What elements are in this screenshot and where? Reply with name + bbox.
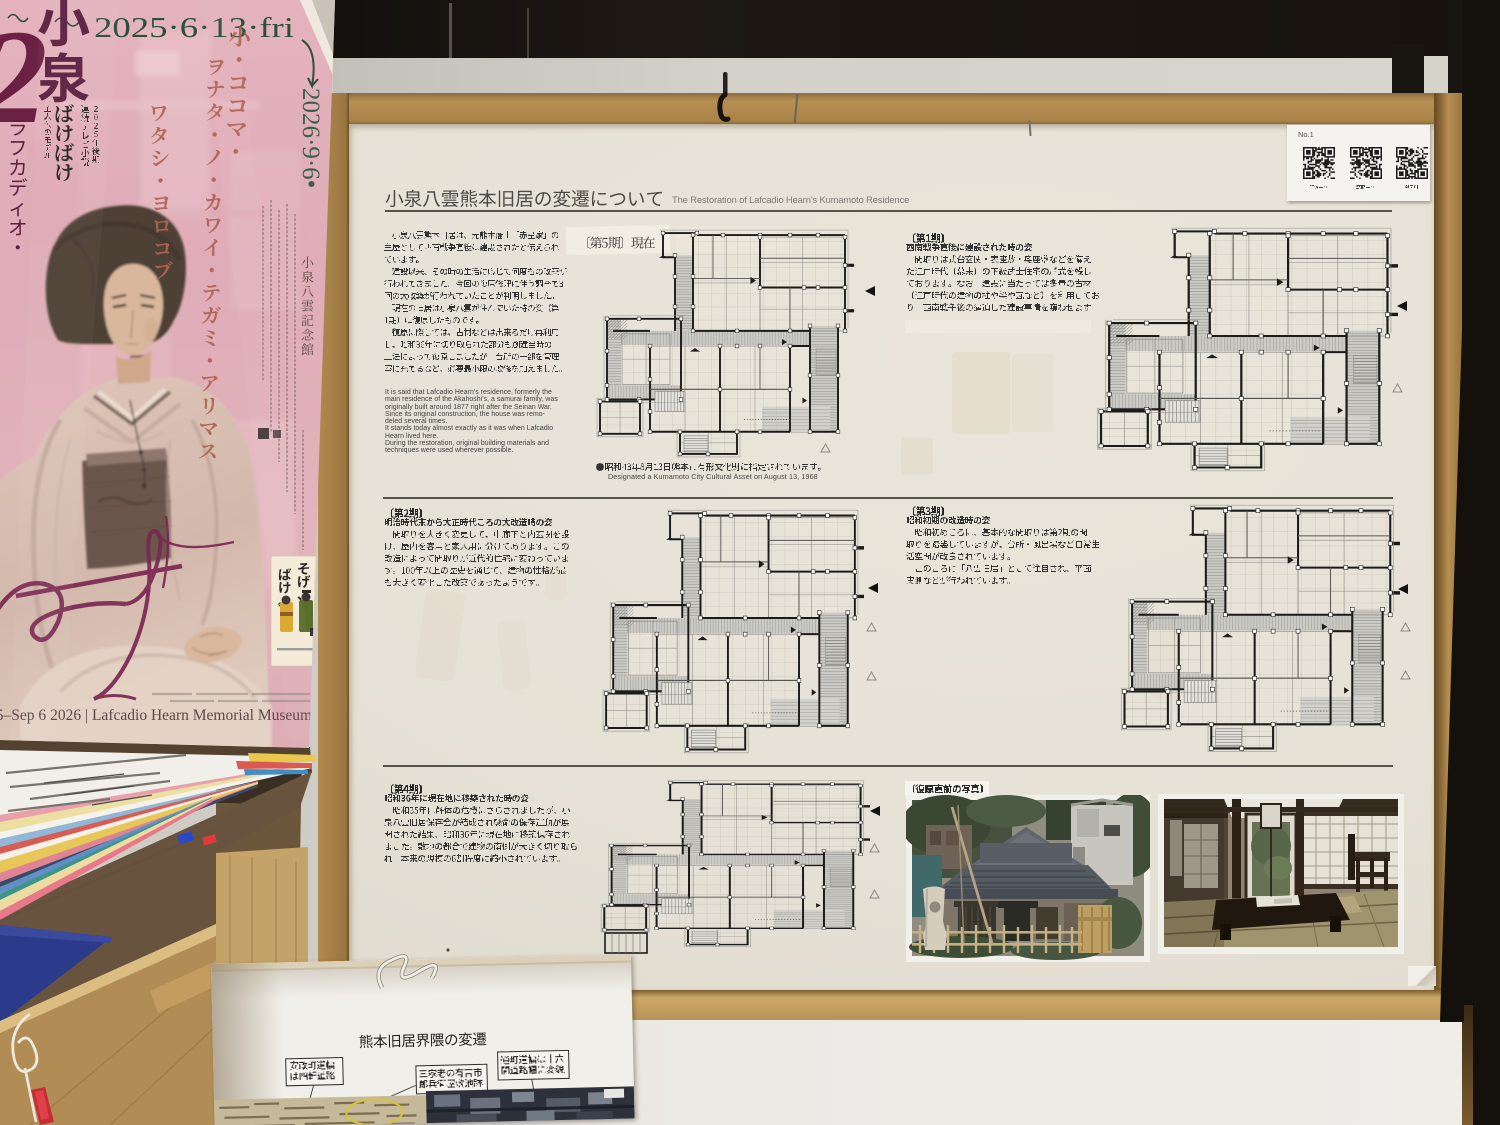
svg-text:2025·6·13·fri: 2025·6·13·fri	[94, 13, 294, 44]
svg-text:2026·9·6•: 2026·9·6•	[297, 88, 324, 188]
